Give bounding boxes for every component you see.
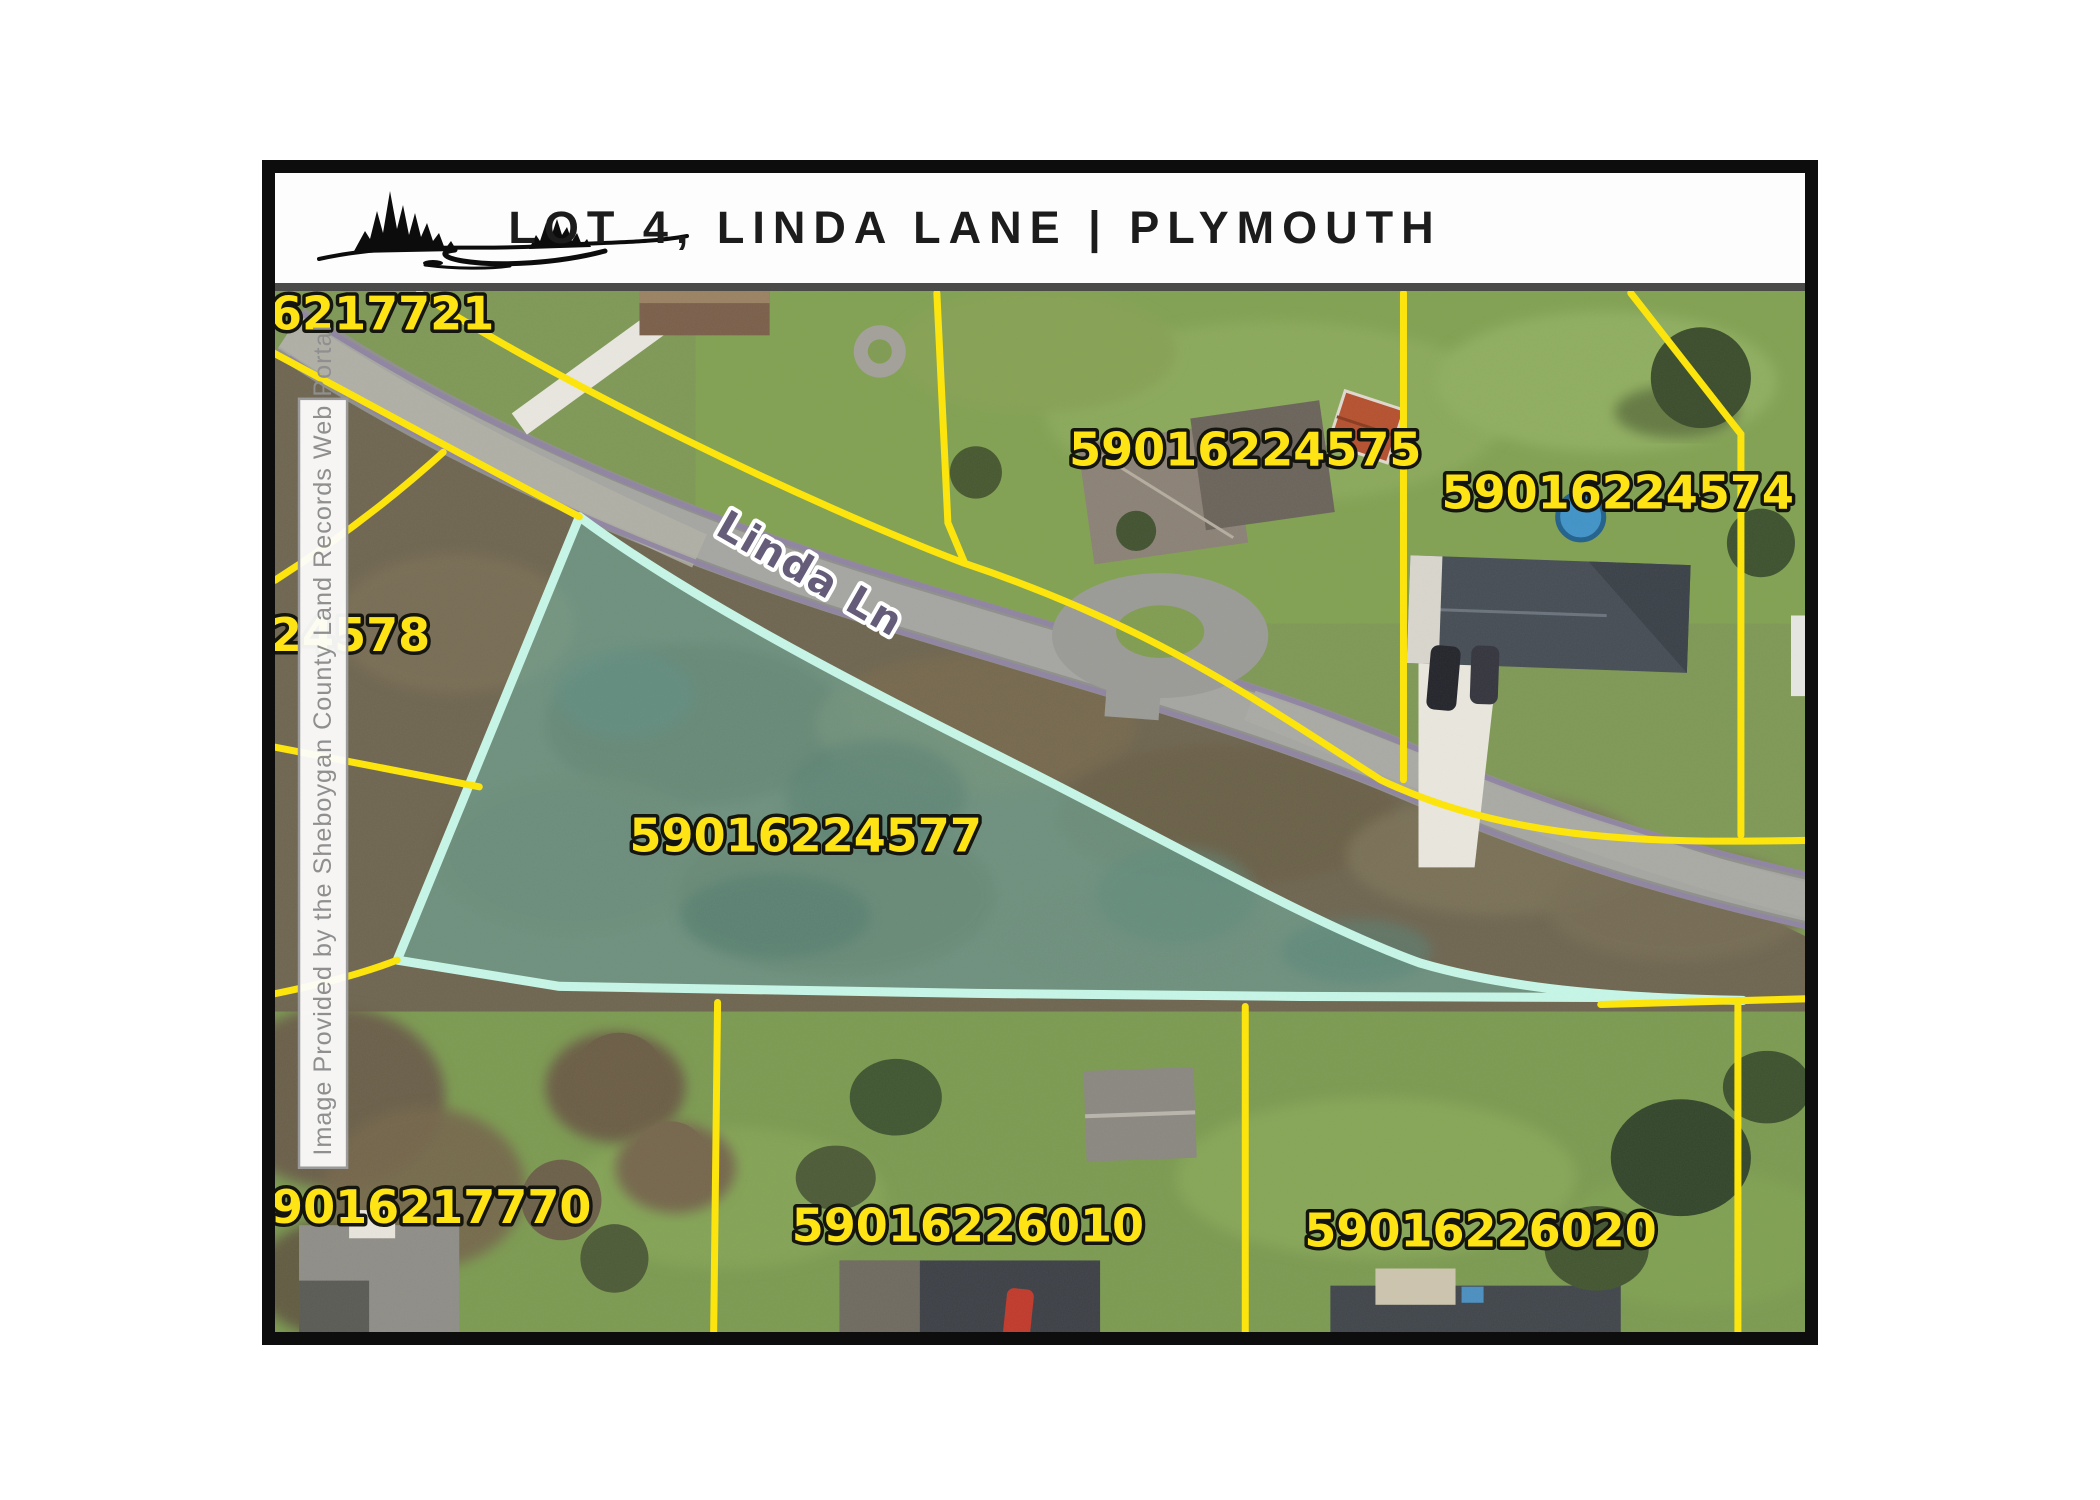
- photo-grain: [275, 291, 1805, 1332]
- parcel-label-north: 59016224575: [1069, 422, 1421, 476]
- parcel-label-southwest: 59016217770: [275, 1180, 591, 1234]
- flyer-header: LOT 4, LINDA LANE | PLYMOUTH: [275, 173, 1805, 291]
- watermark-text: Image Provided by the Sheboygan County L…: [309, 325, 337, 1156]
- page-title: LOT 4, LINDA LANE | PLYMOUTH: [508, 202, 1441, 254]
- parcel-label-highlighted: 59016224577: [630, 808, 982, 862]
- aerial-map: 59016217721 59016224578 59016224575 5901…: [275, 291, 1805, 1332]
- parcel-label-northeast: 59016224574: [1442, 466, 1794, 520]
- watermark-strip: Image Provided by the Sheboygan County L…: [299, 325, 347, 1168]
- parcel-label-south: 59016226010: [792, 1198, 1144, 1252]
- flyer-frame: LOT 4, LINDA LANE | PLYMOUTH: [262, 160, 1818, 1345]
- parcel-label-southeast: 59016226020: [1304, 1203, 1656, 1257]
- parcel-label-nw: 59016217721: [275, 291, 494, 340]
